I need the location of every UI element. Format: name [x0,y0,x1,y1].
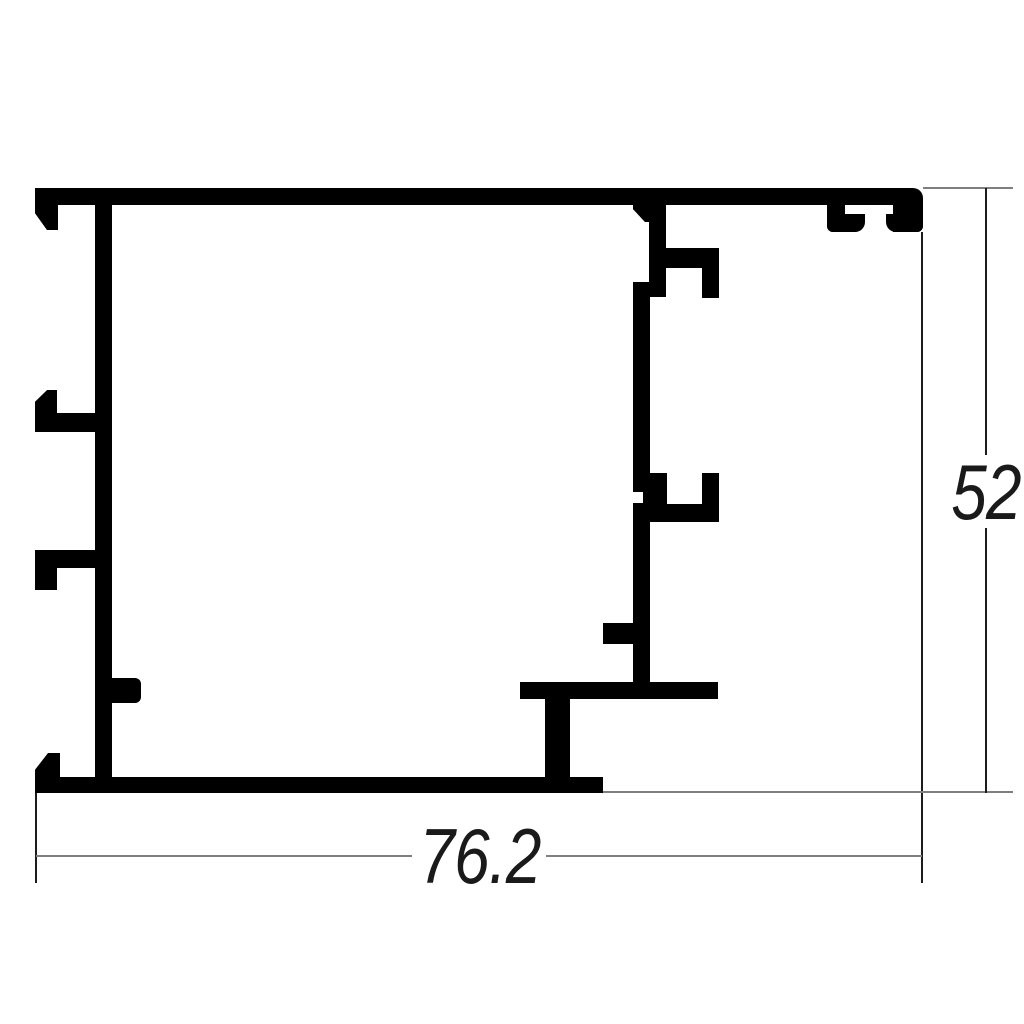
profile-bottom-flange [35,777,603,793]
profile-bottom-tee-flange [520,682,718,699]
profile-mid-wall-upper [649,203,666,297]
profile-left-wall-stub [112,678,141,703]
extension-line-height-top [923,187,1013,189]
profile-top-left-lip [35,188,58,230]
dimension-line-width-segment-right [546,855,922,857]
profile-clip-right-foot [886,214,923,232]
profile-left-hook-a-lip [35,390,57,432]
profile-top-flange [35,188,923,205]
profile-clip-left-foot [827,214,865,232]
drawing-canvas: 76.2 52 [0,0,1024,1024]
height-dimension-label: 52 [929,455,1024,529]
profile-mid-wall-notch [633,492,643,503]
profile-mid-channel-bottom-arm [650,504,719,522]
width-dimension-label: 76.2 [406,818,554,894]
extension-line-width-right [921,232,923,883]
dimension-line-width-segment-left [36,855,412,857]
extension-line-width-left [35,793,37,883]
dimension-line-height-segment-top [985,188,987,455]
profile-mid-wall-barb [633,203,650,222]
profile-mid-wall-left-tab [603,623,633,644]
dimension-line-height-segment-bottom [985,528,987,793]
profile-mid-wall-lower [633,282,650,683]
profile-left-wall [95,188,112,778]
extension-line-height-bottom [603,791,1013,793]
profile-bottom-tee-stem [545,698,570,778]
profile-mid-channel-top-right-leg [702,248,719,298]
